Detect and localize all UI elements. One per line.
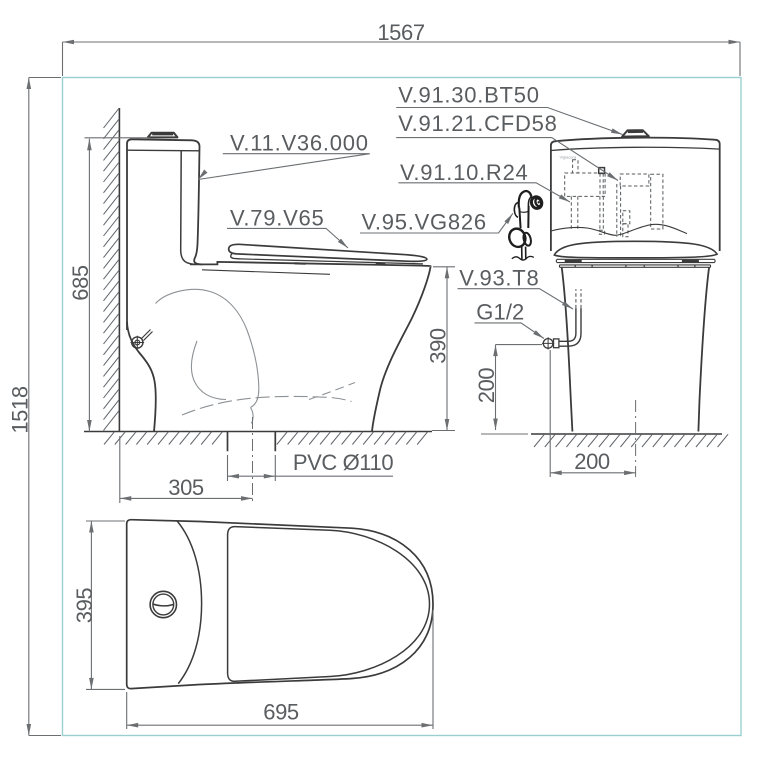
svg-text:1518: 1518: [7, 386, 32, 434]
svg-text:Viglacera: Viglacera: [560, 155, 577, 160]
svg-text:V.11.V36.000: V.11.V36.000: [230, 131, 369, 156]
svg-text:V.93.T8: V.93.T8: [459, 266, 539, 291]
svg-text:685: 685: [68, 265, 93, 301]
svg-text:V.95.VG826: V.95.VG826: [362, 210, 487, 235]
svg-text:V.91.30.BT50: V.91.30.BT50: [398, 83, 540, 108]
svg-text:695: 695: [263, 700, 299, 725]
svg-text:200: 200: [574, 449, 610, 474]
svg-text:V.91.21.CFD58: V.91.21.CFD58: [398, 111, 557, 136]
svg-text:V.79.V65: V.79.V65: [230, 206, 325, 231]
svg-text:390: 390: [425, 328, 450, 364]
svg-text:305: 305: [168, 475, 204, 500]
svg-text:G1/2: G1/2: [476, 300, 524, 325]
svg-text:V.91.10.R24: V.91.10.R24: [400, 160, 529, 185]
svg-text:PVC Ø110: PVC Ø110: [293, 450, 393, 475]
svg-text:395: 395: [72, 588, 97, 624]
svg-text:200: 200: [474, 368, 499, 404]
svg-text:1567: 1567: [377, 20, 425, 45]
